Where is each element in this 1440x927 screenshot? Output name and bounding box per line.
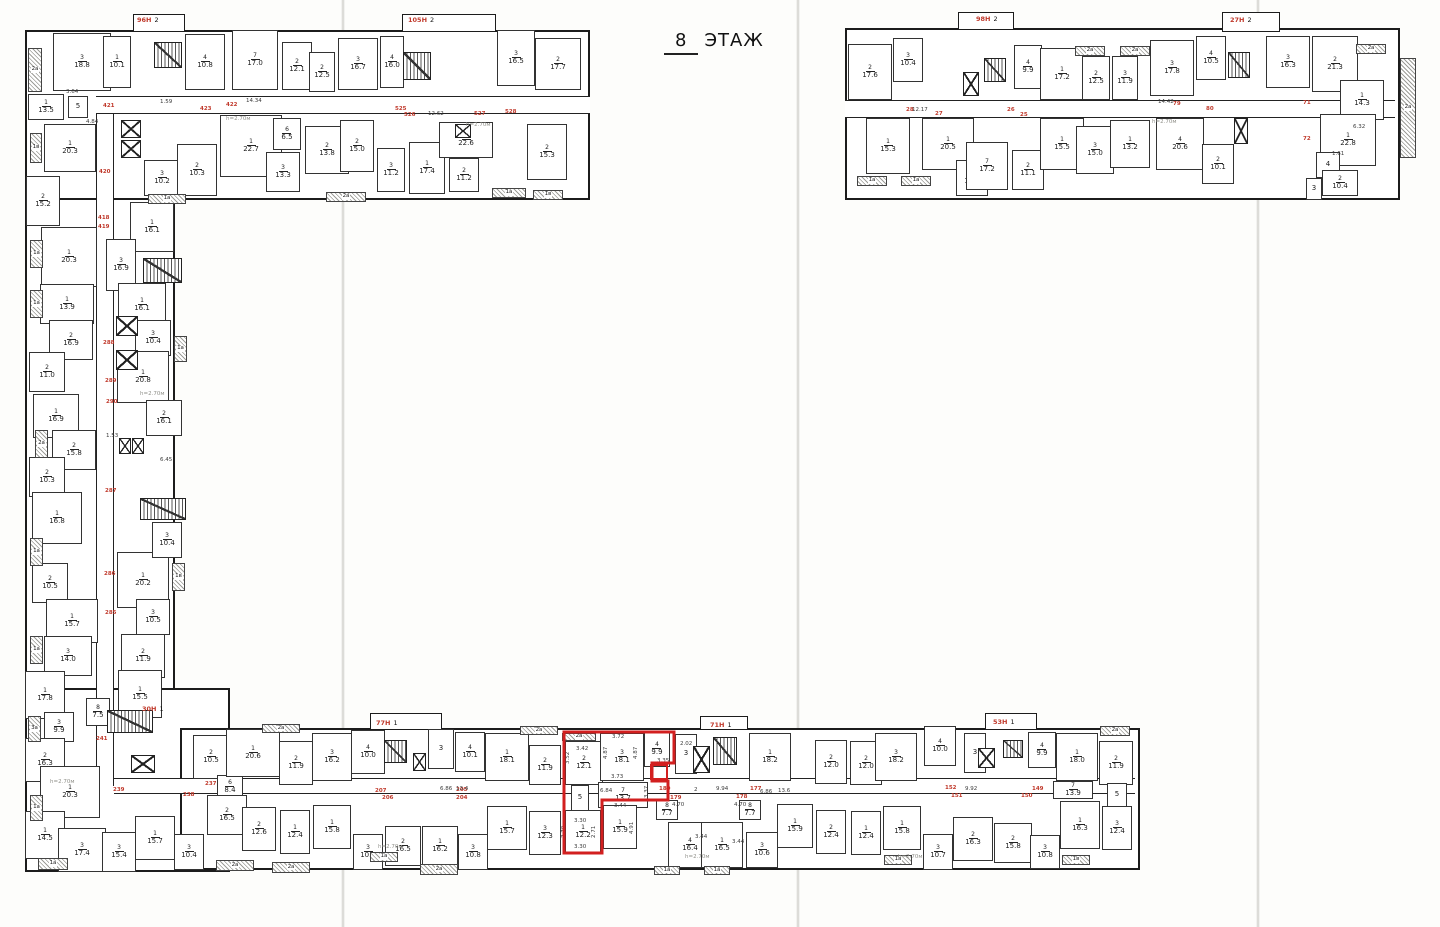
balcony: 1а — [30, 290, 43, 318]
apartment-number: 528 — [505, 110, 516, 116]
room: 118.0 — [1056, 733, 1098, 781]
balcony-label: 1а — [163, 196, 172, 202]
room-label: 210.3 — [39, 470, 55, 485]
balcony: 1а — [38, 858, 68, 870]
room: 116.8 — [32, 492, 82, 544]
balcony: 2а — [272, 862, 310, 873]
balcony-label: 2а — [1404, 105, 1413, 111]
room: 410.8 — [185, 34, 225, 90]
room-label: 68.4 — [224, 780, 235, 795]
room: 212.6 — [242, 807, 276, 851]
room-label: 215.2 — [35, 194, 51, 209]
apartment-number: 150 — [1021, 794, 1032, 800]
room-label: 116.9 — [48, 409, 64, 424]
room: 212.5 — [1082, 56, 1110, 100]
room-label: 317.8 — [1164, 61, 1180, 76]
room: 211.9 — [529, 745, 561, 785]
room: 212.0 — [815, 740, 847, 784]
stairwell-label: 71Н1 — [710, 722, 732, 729]
room: 217.6 — [848, 44, 892, 100]
room-label: 216.3 — [965, 832, 981, 847]
room-label: 115.7 — [64, 614, 80, 629]
room: 310.8 — [458, 834, 488, 870]
elevator-shaft-icon — [121, 120, 141, 138]
balcony-label: 1а — [663, 868, 672, 874]
room: 313.3 — [266, 152, 300, 192]
balcony-label: 2а — [31, 67, 40, 73]
elevator-shaft-icon — [116, 316, 138, 336]
room: 115.8 — [313, 805, 351, 849]
dimension-text: 3.30 — [574, 845, 586, 851]
apartment-number: 526 — [404, 113, 415, 119]
apartment-number: 288 — [103, 341, 114, 347]
balcony: 2а — [216, 860, 254, 871]
balcony-label: 1в — [544, 192, 553, 198]
balcony: 1а — [30, 636, 43, 664]
stairwell-label: 53Н1 — [993, 719, 1015, 726]
balcony: 1а — [704, 866, 730, 875]
room: 212.1 — [282, 42, 312, 90]
dimension-text: h=2.70м — [50, 780, 75, 786]
room-label: 310.2 — [154, 171, 170, 186]
room: 318.2 — [875, 733, 917, 781]
dimension-text: 6.45 — [160, 458, 172, 464]
room-label: 318.2 — [888, 750, 904, 765]
room-label: 410.5 — [1203, 51, 1219, 66]
room-label: 212.0 — [858, 756, 874, 771]
room: 110.1 — [103, 36, 131, 88]
room-label: 317.4 — [74, 843, 90, 858]
room-label: 212.1 — [289, 59, 305, 74]
staircase-icon — [154, 42, 182, 68]
room-label: 310.6 — [754, 843, 770, 858]
room: 212.5 — [309, 52, 335, 92]
room: 211.9 — [279, 741, 313, 785]
room-label: 116.1 — [144, 220, 160, 235]
room-label: 113.2 — [1122, 137, 1138, 152]
room-label: 120.3 — [62, 785, 78, 800]
room: 5 — [68, 96, 88, 118]
room: 118.1 — [485, 733, 529, 781]
apartment-number: 27 — [935, 112, 943, 118]
room-label: 310.4 — [181, 845, 197, 860]
room: 215.8 — [994, 823, 1032, 863]
room-label: 87.7 — [661, 803, 672, 818]
balcony-label: 2а — [37, 441, 46, 447]
room-label: 117.2 — [1054, 67, 1070, 82]
room-label: 212.5 — [1088, 71, 1104, 86]
room-label: 312.3 — [537, 826, 553, 841]
room-label: 4 — [1326, 161, 1330, 168]
balcony-label: 3а — [30, 726, 39, 732]
room-label: 210.5 — [42, 576, 58, 591]
room: 316.5 — [497, 30, 535, 86]
room: 315.0 — [1076, 126, 1114, 174]
room-label: 310.7 — [930, 845, 946, 860]
balcony-label: 1а — [380, 854, 389, 860]
room: 116.2 — [422, 826, 458, 866]
staircase-icon — [1003, 740, 1023, 758]
room: 120.3 — [44, 124, 96, 172]
room-label: 212.0 — [823, 755, 839, 770]
room-label: 118.0 — [1069, 750, 1085, 765]
room: 717.2 — [966, 142, 1008, 190]
room-label: 49.9 — [1022, 60, 1033, 75]
room: 3 — [1306, 178, 1322, 200]
room: 410.0 — [351, 730, 385, 774]
dimension-text: 14.34 — [246, 99, 262, 105]
room-label: 116.5 — [714, 838, 730, 853]
dimension-text: 9.92 — [965, 787, 977, 793]
dimension-text: 3.64 — [66, 90, 78, 96]
dimension-text: 3.44 — [732, 840, 744, 846]
dimension-text: 3.37 — [645, 786, 651, 798]
apartment-number: 287 — [105, 489, 116, 495]
room: 410.0 — [924, 726, 956, 766]
room-label: 3 — [973, 749, 977, 756]
balcony-label: 1а — [32, 549, 41, 555]
room: 112.4 — [851, 811, 881, 855]
room: 49.9 — [1014, 45, 1042, 89]
stairwell-label: 30Н1 — [142, 706, 164, 713]
staircase-icon — [1228, 52, 1250, 78]
balcony-label: 1а — [32, 647, 41, 653]
room-label: 118.2 — [762, 750, 778, 765]
apartment-number: 290 — [106, 400, 117, 406]
staircase-icon — [140, 498, 186, 520]
dimension-text: 3.42 — [576, 747, 588, 753]
room-label: 211.9 — [288, 756, 304, 771]
balcony: 2а — [520, 726, 558, 735]
room-label: 310.4 — [900, 53, 916, 68]
apartment-number: 239 — [113, 788, 124, 794]
room-label: 115.3 — [880, 139, 896, 154]
room: 113.9 — [40, 284, 94, 324]
room: 49.9 — [1028, 732, 1056, 768]
room: 210.5 — [32, 563, 68, 603]
elevator-shaft-icon — [413, 753, 426, 771]
apartment-number: 206 — [382, 796, 393, 802]
room: 115.3 — [866, 118, 910, 174]
room-label: 118.1 — [499, 750, 515, 765]
room-label: 420.6 — [1172, 137, 1188, 152]
balcony: 3а — [28, 716, 41, 742]
room-label: 115.5 — [132, 687, 148, 702]
balcony: 2а — [1100, 726, 1130, 736]
room-label: 314.0 — [60, 649, 76, 664]
room: 316.2 — [312, 733, 352, 781]
room: 115.9 — [777, 804, 813, 848]
dimension-text: h=2.70м — [226, 117, 251, 123]
balcony: 2а — [562, 733, 596, 741]
balcony: 1а — [654, 866, 680, 875]
room: 113.5 — [28, 94, 64, 120]
room-label: 112.2 — [575, 825, 591, 840]
room: 311.9 — [1112, 56, 1138, 100]
room-label: 315.0 — [1087, 143, 1103, 158]
apartment-number: 285 — [105, 611, 116, 617]
room-label: 210.3 — [189, 163, 205, 178]
elevator-shaft-icon — [131, 755, 155, 773]
room-label: 310.8 — [1037, 845, 1053, 860]
balcony-label: 1а — [176, 346, 185, 352]
room: 210.4 — [1322, 170, 1358, 196]
room-label: 410.1 — [462, 745, 478, 760]
room-label: 318.8 — [74, 55, 90, 70]
balcony-label: 1а — [32, 301, 41, 307]
apartment-number: 423 — [200, 107, 211, 113]
room-label: 310.4 — [159, 533, 175, 548]
floor-title: 8ЭТАЖ — [664, 30, 764, 51]
room-label: 66.5 — [281, 127, 292, 142]
room: 115.8 — [883, 806, 921, 850]
room-label: 217.7 — [550, 57, 566, 72]
elevator-shaft-icon — [119, 438, 131, 454]
dimension-text: h=2.70м — [140, 392, 165, 398]
apartment-number: 207 — [375, 789, 386, 795]
apartment-number: 79 — [1173, 102, 1181, 108]
room: 717.0 — [232, 30, 278, 90]
room-label: 212.6 — [251, 822, 267, 837]
room: 115.7 — [487, 806, 527, 850]
room-label: 117.8 — [37, 688, 53, 703]
dimension-text: 14.42 — [1158, 100, 1174, 106]
balcony: 2а — [262, 724, 300, 733]
dimension-text: 6.32 — [1353, 125, 1365, 131]
room-label: 49.9 — [651, 742, 662, 757]
apartment-number: 151 — [951, 794, 962, 800]
room-label: 3 — [1312, 185, 1316, 192]
room-label: 113.5 — [38, 100, 54, 115]
room-label: 313.3 — [275, 165, 291, 180]
room-label: 3 — [684, 750, 688, 757]
room-label: 110.1 — [109, 55, 125, 70]
room-label: 410.8 — [197, 55, 213, 70]
room: 316.7 — [338, 38, 378, 90]
apartment-number: 238 — [183, 793, 194, 799]
room-label: 113.9 — [59, 297, 75, 312]
room: 310.7 — [923, 834, 953, 870]
room-label: 211.1 — [1020, 163, 1036, 178]
apartment-number: 204 — [456, 796, 467, 802]
room-label: 316.7 — [350, 57, 366, 72]
room: 216.1 — [146, 400, 182, 436]
floor-word: ЭТАЖ — [704, 30, 763, 51]
dimension-text: 2.71 — [592, 826, 598, 838]
balcony: 2а — [1120, 46, 1150, 56]
room-label: 120.6 — [245, 746, 261, 761]
balcony: 2а — [1075, 46, 1105, 56]
apartment-number: 237 — [205, 782, 216, 788]
dimension-text: 1.59 — [160, 100, 172, 106]
balcony: 1а — [370, 852, 398, 862]
balcony-label: 2а — [277, 726, 286, 732]
room-label: 3 — [439, 745, 443, 752]
balcony: 1а — [148, 194, 186, 204]
apartment-number: 418 — [98, 216, 109, 222]
room: 310.4 — [174, 834, 204, 870]
room: 713.9 — [1053, 781, 1093, 799]
balcony: 1в — [1062, 855, 1090, 865]
room-label: 122.7 — [243, 139, 259, 154]
room: 410.1 — [455, 732, 485, 772]
apartment-number: 527 — [474, 112, 485, 118]
room-label: 122.8 — [1340, 133, 1356, 148]
room-label: 316.9 — [113, 258, 129, 273]
balcony-label: 1а — [713, 868, 722, 874]
room-label: 318.1 — [614, 750, 630, 765]
room-label: 116.1 — [134, 298, 150, 313]
room-label: 114.3 — [1354, 93, 1370, 108]
room: 217.7 — [535, 38, 581, 90]
room-label: 410.0 — [932, 739, 948, 754]
balcony-label: 2а — [535, 728, 544, 734]
elevator-shaft-icon — [1234, 118, 1248, 144]
room-label: 717.0 — [247, 53, 263, 68]
room-label: 213.8 — [319, 143, 335, 158]
room-label: 120.8 — [135, 370, 151, 385]
room-label: 49.9 — [1036, 743, 1047, 758]
room: 216.3 — [953, 817, 993, 861]
room-label: 116.2 — [432, 839, 448, 854]
room: 5 — [1107, 783, 1127, 807]
apartment-number: 241 — [96, 737, 107, 743]
balcony: 2а — [1400, 58, 1416, 158]
room-label: 120.3 — [61, 250, 77, 265]
room-label: 316.3 — [1280, 55, 1296, 70]
dimension-text: 12.62 — [428, 112, 444, 118]
room: 210.3 — [29, 457, 65, 497]
dimension-text: h=2.70м — [378, 845, 403, 851]
dimension-text: 3.72 — [612, 735, 624, 741]
room-label: 120.2 — [135, 573, 151, 588]
room: 5 — [571, 785, 589, 811]
room-label: 211.9 — [1108, 756, 1124, 771]
dimension-text: 4.84 — [86, 120, 98, 126]
room-label: 212.1 — [576, 756, 592, 771]
room-label: 212.5 — [314, 65, 330, 80]
apartment-number: 422 — [226, 103, 237, 109]
room: 316.3 — [1266, 36, 1310, 88]
room-label: 713.9 — [1065, 783, 1081, 798]
room-label: 215.8 — [1005, 836, 1021, 851]
room-label: 312.4 — [1109, 821, 1125, 836]
dimension-text: 3.30 — [574, 819, 586, 825]
dimension-text: 2.02 — [680, 742, 692, 748]
room: 310.8 — [1030, 835, 1060, 869]
dimension-text: 9.94 — [716, 787, 728, 793]
apartment-number: 71 — [1303, 101, 1311, 107]
balcony-label: 1а — [912, 178, 921, 184]
stairwell-label: 98Н2 — [976, 16, 998, 23]
apartment-number: 25 — [1020, 113, 1028, 119]
apartment-number: 286 — [104, 572, 115, 578]
room: 112.4 — [280, 810, 310, 854]
room-label: 221.3 — [1327, 57, 1343, 72]
room: 3 — [428, 729, 454, 769]
room-label: 315.4 — [111, 845, 127, 860]
dimension-text: 1.61 — [1332, 152, 1344, 158]
balcony: 1а — [30, 240, 43, 268]
room: 216.5 — [207, 795, 247, 835]
room: 215.0 — [340, 120, 374, 172]
room-label: 115.8 — [324, 820, 340, 835]
balcony-label: 2а — [1131, 48, 1140, 54]
room-label: 210.4 — [1332, 176, 1348, 191]
balcony-label: 1а — [505, 190, 514, 196]
room-label: 311.2 — [383, 163, 399, 178]
dimension-text: 4.87 — [604, 747, 610, 759]
dimension-text: 6.86 — [440, 787, 452, 793]
staircase-icon — [107, 710, 153, 733]
room: 116.3 — [1060, 801, 1100, 849]
balcony: 2а — [35, 430, 48, 458]
dimension-text: 3.44 — [695, 835, 707, 841]
room-label: 5 — [1115, 791, 1119, 798]
dimension-text: 6.86 — [760, 790, 772, 796]
room: 311.2 — [377, 148, 405, 192]
balcony-label: 2а — [435, 867, 444, 873]
room-label: 39.9 — [53, 720, 64, 735]
dimension-text: h=2.70м — [1152, 120, 1177, 126]
dimension-text: 3.52 — [566, 752, 572, 764]
balcony-label: 2а — [287, 865, 296, 871]
balcony-label: 2а — [1086, 48, 1095, 54]
room: 120.3 — [41, 227, 97, 287]
room-label: 117.4 — [419, 161, 435, 176]
elevator-shaft-icon — [978, 748, 995, 768]
room-label: 87.5 — [92, 705, 103, 720]
apartment-number: 80 — [1206, 107, 1214, 113]
dimension-text: 2 — [694, 788, 698, 794]
room-label: 115.7 — [499, 821, 515, 836]
floor-plan-canvas: 8ЭТАЖ 113.55120.3215.2318.8110.1410.8717… — [0, 0, 1440, 927]
balcony-label: 1а — [32, 805, 41, 811]
room-label: 215.3 — [539, 145, 555, 160]
room: 118.2 — [749, 733, 791, 781]
room-label: 211.2 — [456, 168, 472, 183]
elevator-shaft-icon — [116, 350, 138, 370]
elevator-shaft-icon — [963, 72, 979, 96]
apartment-number: 179 — [670, 796, 681, 802]
staircase-icon — [403, 52, 431, 80]
dimension-text: 1.53 — [106, 434, 118, 440]
room: 115.7 — [135, 816, 175, 860]
dimension-text: 4.70 — [672, 803, 684, 809]
dimension-text: 4.87 — [634, 747, 640, 759]
room: 120.6 — [226, 729, 280, 777]
balcony: 1а — [174, 336, 187, 362]
apartment-number: 26 — [1007, 108, 1015, 114]
room-label: 211.0 — [39, 365, 55, 380]
room: 312.4 — [1102, 806, 1132, 850]
room-label: 115.8 — [894, 821, 910, 836]
room-label: 5 — [578, 794, 582, 801]
apartment-number: 178 — [736, 795, 747, 801]
room-label: 216.9 — [63, 333, 79, 348]
dimension-text: 13.6 — [778, 789, 790, 795]
room-label: 210.5 — [203, 750, 219, 765]
elevator-shaft-icon — [132, 438, 144, 454]
balcony: 2а — [28, 48, 42, 92]
balcony: 1в — [172, 563, 185, 591]
balcony-label: 2а — [231, 863, 240, 869]
dimension-text: h=2.70м — [898, 855, 923, 861]
room-label: 116.8 — [49, 511, 65, 526]
room-label: 211.9 — [135, 649, 151, 664]
balcony: 2а — [1356, 44, 1386, 54]
balcony-label: 1а — [868, 178, 877, 184]
